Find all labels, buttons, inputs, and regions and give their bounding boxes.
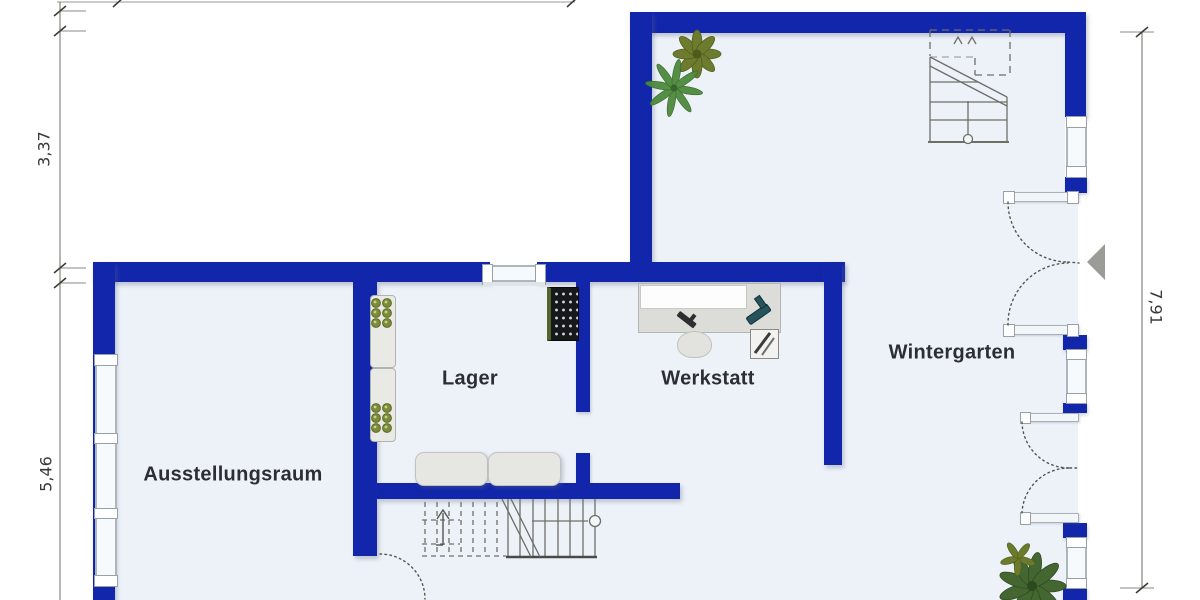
- entrance-arrow-icon: [1087, 244, 1105, 280]
- floor-main: [115, 282, 1078, 600]
- shelf-unit: [370, 295, 396, 368]
- floor-door-recess: [1065, 202, 1078, 264]
- shelf-unit: [370, 368, 396, 442]
- floor-plan: Ausstellungsraum Lager Werkstatt Winterg…: [0, 0, 1200, 600]
- wall-segment: [1065, 33, 1086, 117]
- storage-rack: [547, 287, 579, 341]
- room-label-ausstellungsraum: Ausstellungsraum: [143, 464, 322, 487]
- sofa-cushion: [488, 452, 561, 486]
- wall-segment: [1063, 523, 1087, 538]
- window: [1066, 538, 1087, 588]
- tool-cabinet: [750, 329, 779, 359]
- window-band: [1003, 192, 1079, 202]
- workbench: [638, 283, 781, 333]
- wall-segment: [1063, 403, 1087, 413]
- sofa-cushion: [415, 452, 488, 486]
- window-band: [1020, 513, 1079, 523]
- wall-segment: [537, 262, 845, 282]
- window: [95, 356, 117, 585]
- window: [1066, 350, 1087, 403]
- window-sill: [483, 282, 545, 286]
- wall-segment: [630, 12, 1086, 33]
- chair: [677, 331, 712, 358]
- wall-segment: [93, 262, 490, 282]
- room-label-wintergarten: Wintergarten: [889, 342, 1016, 365]
- wall-segment: [576, 453, 590, 484]
- window: [1066, 117, 1087, 177]
- wall-segment: [1063, 335, 1087, 350]
- floor-wintergarten-north: [652, 33, 1065, 262]
- dimension-label-left-top: 3,37: [35, 131, 54, 167]
- window: [490, 265, 538, 282]
- window-band: [1003, 325, 1079, 335]
- wall-segment: [824, 262, 842, 465]
- dimension-label-left-bottom: 5,46: [37, 456, 56, 492]
- room-label-werkstatt: Werkstatt: [661, 368, 754, 391]
- dimension-label-right: 7,91: [1147, 289, 1166, 325]
- wall-segment: [1063, 588, 1087, 600]
- wall-segment: [630, 12, 652, 262]
- window-band: [1020, 413, 1079, 422]
- floor-strip: [845, 262, 1078, 282]
- room-label-lager: Lager: [442, 368, 498, 391]
